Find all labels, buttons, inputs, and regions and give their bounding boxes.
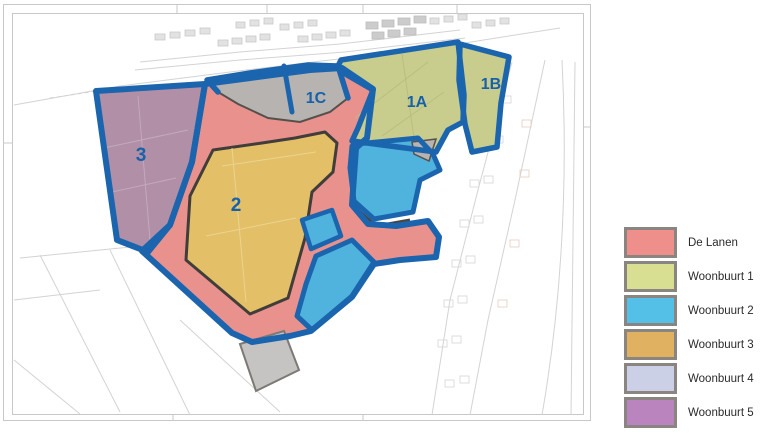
zone-label-1a: 1A <box>407 94 428 111</box>
legend-label-woonbuurt-4: Woonbuurt 4 <box>688 373 754 385</box>
legend-row-woonbuurt-2: Woonbuurt 2 <box>624 295 770 326</box>
legend-swatch-woonbuurt-3 <box>624 329 677 360</box>
legend-swatch-woonbuurt-4 <box>624 363 677 394</box>
zone-label-3: 3 <box>136 145 147 166</box>
zone-label-2: 2 <box>231 195 242 216</box>
legend-label-woonbuurt-2: Woonbuurt 2 <box>688 305 754 317</box>
zone-label-1c: 1C <box>306 90 327 107</box>
legend: De Lanen Woonbuurt 1 Woonbuurt 2 Woonbuu… <box>624 227 770 431</box>
legend-swatch-de-lanen <box>624 227 677 258</box>
legend-swatch-woonbuurt-5 <box>624 397 677 428</box>
legend-row-woonbuurt-5: Woonbuurt 5 <box>624 397 770 428</box>
legend-label-woonbuurt-3: Woonbuurt 3 <box>688 339 754 351</box>
legend-row-de-lanen: De Lanen <box>624 227 770 258</box>
zone-label-1b: 1B <box>481 76 501 93</box>
legend-row-woonbuurt-3: Woonbuurt 3 <box>624 329 770 360</box>
legend-row-woonbuurt-1: Woonbuurt 1 <box>624 261 770 292</box>
legend-swatch-woonbuurt-2 <box>624 295 677 326</box>
legend-swatch-woonbuurt-1 <box>624 261 677 292</box>
legend-label-woonbuurt-5: Woonbuurt 5 <box>688 407 754 419</box>
legend-label-woonbuurt-1: Woonbuurt 1 <box>688 271 754 283</box>
legend-row-woonbuurt-4: Woonbuurt 4 <box>624 363 770 394</box>
legend-label-de-lanen: De Lanen <box>688 237 738 249</box>
